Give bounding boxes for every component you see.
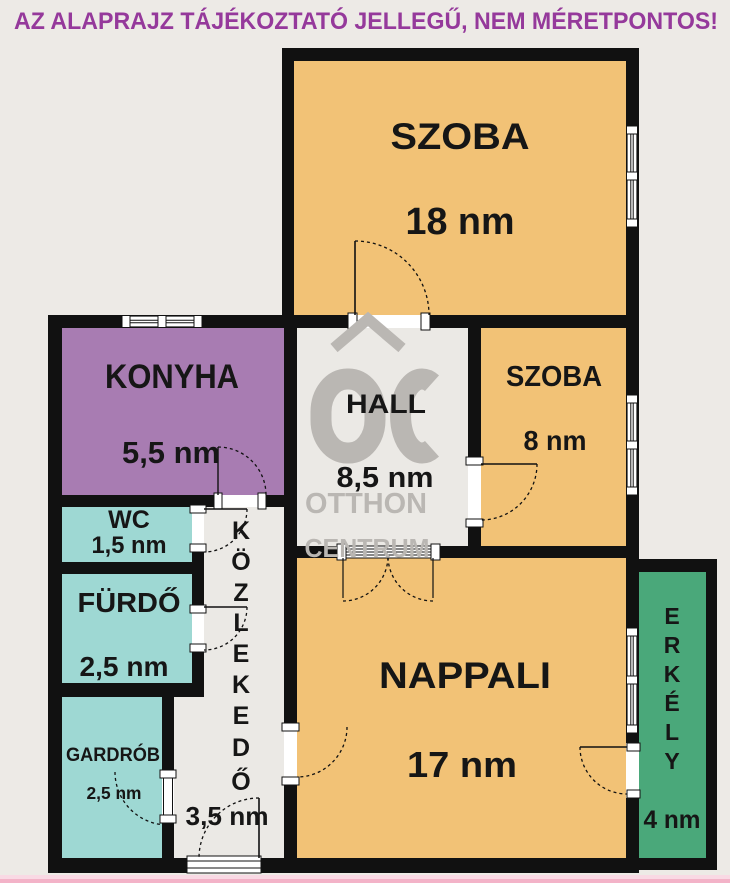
svg-text:D: D <box>232 734 250 762</box>
svg-text:É: É <box>664 689 679 716</box>
svg-text:HALL: HALL <box>346 389 426 419</box>
svg-text:8,5 nm: 8,5 nm <box>337 462 434 494</box>
svg-text:CENTRUM: CENTRUM <box>305 533 430 563</box>
svg-text:K: K <box>232 671 250 699</box>
svg-text:Y: Y <box>664 748 679 774</box>
svg-text:5,5 nm: 5,5 nm <box>122 435 220 470</box>
svg-text:SZOBA: SZOBA <box>391 116 530 157</box>
svg-text:Ö: Ö <box>231 547 250 576</box>
svg-text:3,5 nm: 3,5 nm <box>186 801 269 831</box>
svg-text:R: R <box>664 632 681 658</box>
svg-text:L: L <box>233 609 248 637</box>
svg-text:K: K <box>232 517 250 545</box>
svg-text:AZ ALAPRAJZ TÁJÉKOZTATÓ JELLEG: AZ ALAPRAJZ TÁJÉKOZTATÓ JELLEGŰ, NEM MÉR… <box>14 7 718 35</box>
svg-text:2,5 nm: 2,5 nm <box>87 783 142 803</box>
svg-text:E: E <box>233 640 250 668</box>
svg-text:1,5 nm: 1,5 nm <box>92 532 167 559</box>
svg-text:L: L <box>665 719 679 745</box>
svg-text:KONYHA: KONYHA <box>105 358 239 396</box>
svg-text:SZOBA: SZOBA <box>506 361 602 393</box>
svg-text:4 nm: 4 nm <box>644 806 701 834</box>
svg-text:18 nm: 18 nm <box>406 201 515 243</box>
svg-text:8 nm: 8 nm <box>524 425 587 456</box>
svg-text:2,5 nm: 2,5 nm <box>80 651 169 682</box>
svg-text:K: K <box>664 661 681 687</box>
svg-text:E: E <box>664 603 679 629</box>
svg-text:E: E <box>233 702 250 730</box>
svg-text:17 nm: 17 nm <box>407 744 517 785</box>
svg-text:GARDRÓB: GARDRÓB <box>66 744 160 766</box>
svg-text:Z: Z <box>233 579 248 607</box>
svg-text:FÜRDŐ: FÜRDŐ <box>78 587 181 618</box>
svg-text:WC: WC <box>108 506 150 534</box>
svg-text:Ő: Ő <box>231 767 250 796</box>
svg-text:NAPPALI: NAPPALI <box>379 655 551 696</box>
